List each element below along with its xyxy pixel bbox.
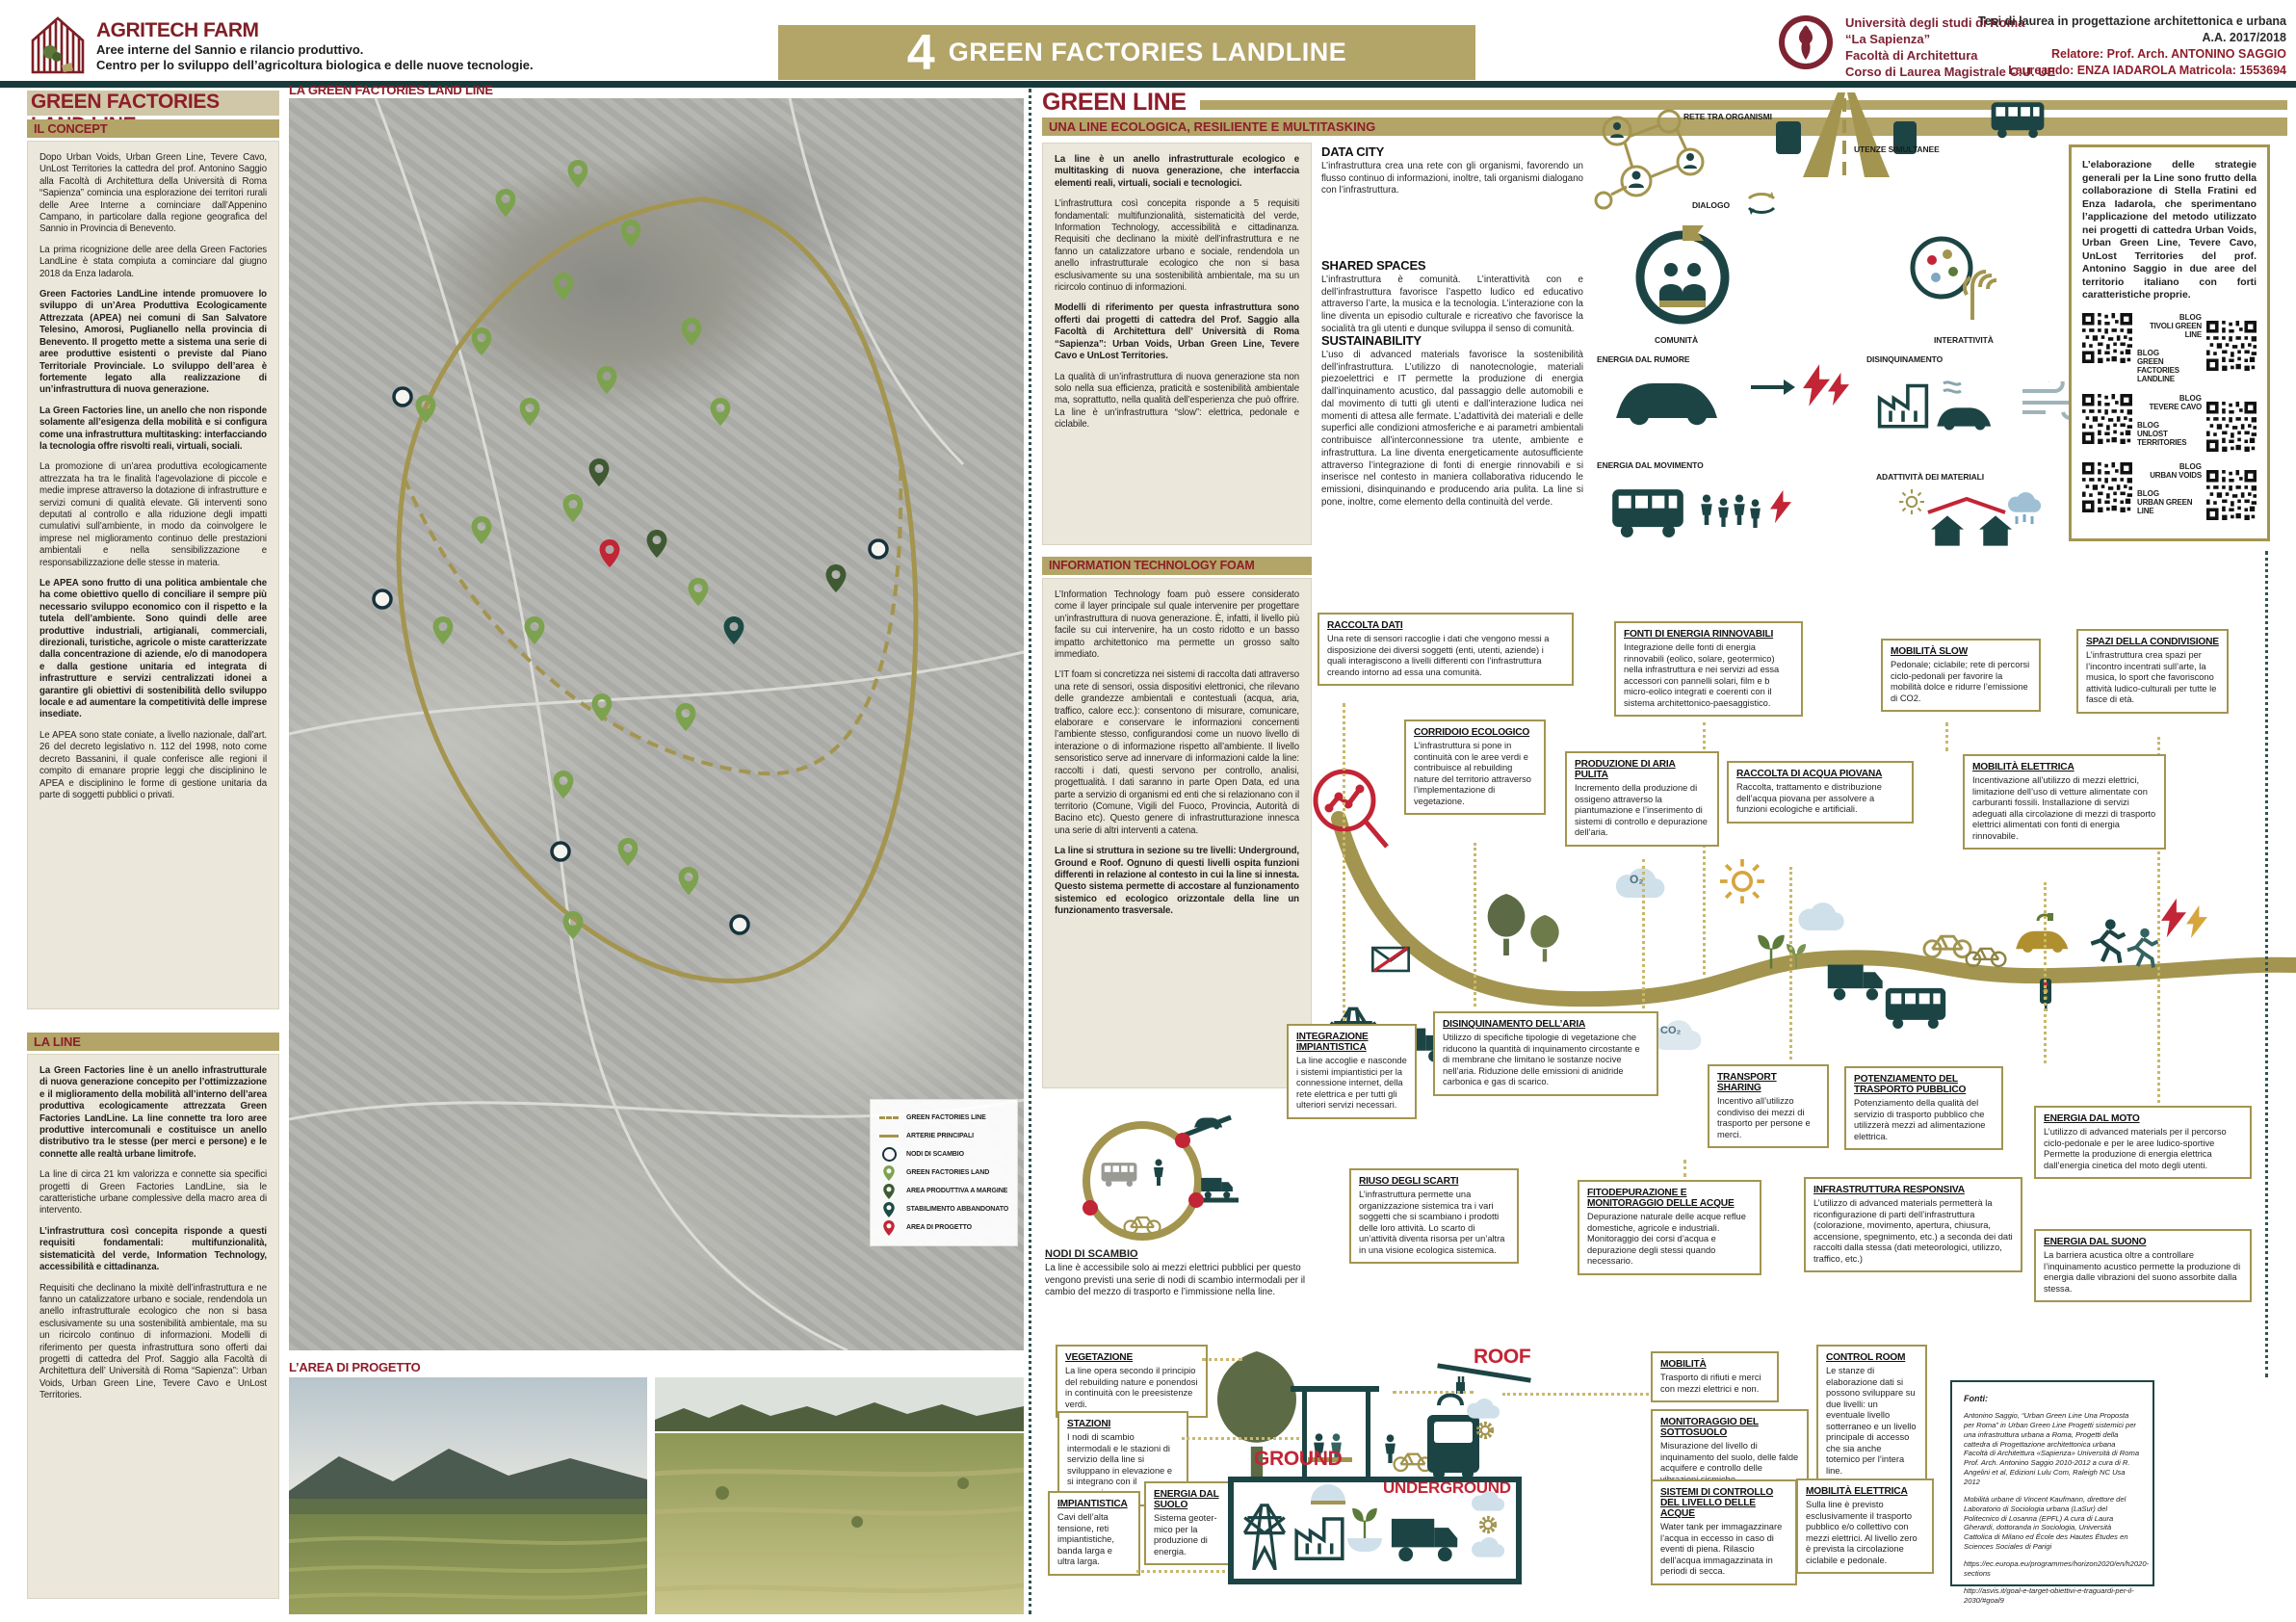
qr-blog-label: BLOG <box>2137 313 2202 322</box>
qr-code-urban-green-line <box>2082 462 2132 512</box>
connector <box>1343 703 1345 1021</box>
strategy-box: L’elaborazione delle strategie generali … <box>2069 144 2270 541</box>
datacity-block: DATA CITY L’infrastruttura crea una rete… <box>1321 144 1583 197</box>
territory-map: GREEN FACTORIES LINE ARTERIE PRINCIPALI … <box>289 98 1024 1350</box>
intro-paragraph: Modelli di riferimento per questa infras… <box>1055 302 1299 362</box>
qr-row: BLOG TIVOLI GREEN LINE BLOG GREEN FACTOR… <box>2082 313 2257 383</box>
oxygen-cloud: O₂ <box>1614 867 1666 903</box>
concept-section-bar: IL CONCEPT <box>27 119 279 138</box>
agritech-farm-subtitle-2: Centro per lo sviluppo dell’agricoltura … <box>96 58 534 73</box>
map-legend: GREEN FACTORIES LINE ARTERIE PRINCIPALI … <box>870 1099 1018 1246</box>
itfoam-paragraph: L’Information Technology foam può essere… <box>1055 589 1299 661</box>
laline-paragraph: La Green Factories line è un anello infr… <box>39 1065 267 1161</box>
green-factories-dashed-line <box>404 459 900 773</box>
annotation-mobilita: MOBILITÀTrasporto di rifiuti e merci con… <box>1651 1351 1779 1402</box>
lightning-icon <box>1803 364 1849 411</box>
annotation-mobilita-elettrica: MOBILITÀ ELETTRICAIncentivazione all’uti… <box>1963 754 2166 850</box>
pins-green-factories-land <box>416 160 731 939</box>
annotation-disinquinamento-aria: DISINQUINAMENTO DELL’ARIAUtilizzo di spe… <box>1433 1011 1658 1096</box>
laline-heading: LA LINE <box>34 1034 81 1049</box>
cloud-icon <box>1797 902 1845 935</box>
node-circle-icon <box>878 1147 900 1162</box>
connector <box>1789 867 1792 1060</box>
co2-cloud: CO₂ <box>1651 1019 1703 1055</box>
sapienza-logo <box>1777 13 1835 71</box>
energy-bolt-icon <box>2161 898 2207 943</box>
geothermal-dome <box>1311 1484 1345 1504</box>
legend-item: AREA PRODUTTIVA A MARGINE <box>878 1182 1009 1200</box>
concept-paragraph: La prima ricognizione delle aree della G… <box>39 245 267 280</box>
pollution-car-factory-icon <box>1876 376 2001 440</box>
annotation-spazi-condivisione: SPAZI DELLA CONDIVISIONEL’infrastruttura… <box>2076 629 2229 714</box>
adaptive-houses-icon <box>1893 489 2048 552</box>
gear-icon <box>1478 1515 1498 1534</box>
annotation-transport-sharing: TRANSPORT SHARINGIncentivo all’utilizzo … <box>1708 1064 1829 1148</box>
agritech-farm-title: AGRITECH FARM <box>96 19 534 42</box>
thesis-line-2: A.A. 2017/2018 <box>1872 30 2286 46</box>
fonti-heading: Fonti: <box>1964 1394 2141 1403</box>
annotation-acqua-piovana: RACCOLTA DI ACQUA PIOVANARaccolta, tratt… <box>1727 761 1914 824</box>
thesis-poster: AGRITECH FARM Aree interne del Sannio e … <box>0 0 2296 1622</box>
dialog-arrows-icon <box>1745 191 1778 221</box>
bus-icon <box>1990 100 2046 144</box>
annotation-riuso-scarti: RIUSO DEGLI SCARTIL’infrastruttura perme… <box>1349 1168 1519 1264</box>
annotation-energia-moto: ENERGIA DAL MOTOL’utilizzo di advanced m… <box>2034 1106 2252 1179</box>
data-cloud-icon <box>1471 1536 1505 1557</box>
community-icon <box>1631 223 1735 332</box>
nodi-di-scambio-diagram <box>1067 1115 1240 1255</box>
sustainability-block: SUSTAINABILITY L’uso di advanced materia… <box>1321 333 1583 510</box>
qr-blog-label: BLOG <box>2137 489 2202 498</box>
connector <box>1945 722 1948 751</box>
sun-power-icon <box>1720 859 1764 908</box>
pin-icon <box>878 1184 900 1199</box>
ground-label: GROUND <box>1254 1448 1343 1471</box>
chapter-banner: 4 GREEN FACTORIES LANDLINE <box>778 25 1475 80</box>
shelter-post <box>1366 1392 1370 1477</box>
charging-plug-icon <box>1431 1376 1470 1415</box>
pins-area-produttiva-a-margine <box>589 458 847 592</box>
thesis-relatore: Relatore: Prof. Arch. ANTONINO SAGGIO <box>1872 46 2286 63</box>
concept-paragraph: Green Factories LandLine intende promuov… <box>39 289 267 397</box>
energia-rumore-label: ENERGIA DAL RUMORE <box>1597 354 1689 364</box>
sharedspaces-text: L’infrastruttura è comunità. L’interatti… <box>1321 275 1583 336</box>
nodi-di-scambio-caption: NODI DI SCAMBIO La line è accessibile so… <box>1045 1248 1326 1299</box>
qr-row: BLOG URBAN VOIDS BLOG URBAN GREEN LINE <box>2082 462 2257 520</box>
strategy-text: L’elaborazione delle strategie generali … <box>2082 159 2257 302</box>
datacity-heading: DATA CITY <box>1321 144 1583 159</box>
right-dotted-divider <box>2265 551 2268 1377</box>
dashed-line-icon <box>878 1116 900 1119</box>
qr-code-unlost-territories <box>2082 394 2132 444</box>
utenze-simultanee-label: UTENZE SIMULTANEE <box>1854 144 1940 154</box>
legend-item: GREEN FACTORIES LINE <box>878 1109 1009 1127</box>
adattivita-label: ADATTIVITÀ DEI MATERIALI <box>1876 472 1984 482</box>
connector <box>1502 1393 1649 1396</box>
annotation-sistemi-acque: SISTEMI DI CONTROLLO DEL LIVELLO DELLE A… <box>1651 1479 1797 1585</box>
itfoam-paragraph: La line si struttura in sezione su tre l… <box>1055 846 1299 917</box>
pin-icon <box>878 1220 900 1236</box>
connector <box>1202 1358 1242 1361</box>
annotation-potenziamento-trasporto: POTENZIAMENTO DEL TRASPORTO PUBBLICOPote… <box>1844 1066 2003 1150</box>
thesis-line-1: Tesi di laurea in progettazione architet… <box>1872 13 2286 30</box>
annotation-mobilita-slow: MOBILITÀ SLOWPedonale; ciclabile; rete d… <box>1881 639 2041 712</box>
roof-label: ROOF <box>1474 1346 1530 1369</box>
legend-item: STABILIMENTO ABBANDONATO <box>878 1200 1009 1218</box>
data-cloud-icon <box>1466 1398 1500 1419</box>
qr-code-urban-voids <box>2206 470 2257 520</box>
concept-text-box: Dopo Urban Voids, Urban Green Line, Teve… <box>27 141 279 1009</box>
qr-label: GREEN FACTORIES LANDLINE <box>2137 357 2202 383</box>
laline-paragraph: L’infrastruttura così concepita risponde… <box>39 1226 267 1274</box>
laline-paragraph: La line di circa 21 km valorizza e conne… <box>39 1169 267 1217</box>
laline-paragraph: Requisiti che declinano la mixitè dell’i… <box>39 1283 267 1402</box>
sprout-icon <box>1757 932 1807 974</box>
agritech-farm-subtitle-1: Aree interne del Sannio e rilancio produ… <box>96 42 534 58</box>
intro-paragraph: L’infrastruttura così concepita risponde… <box>1055 198 1299 294</box>
greenline-title: GREEN LINE <box>1042 89 1200 117</box>
section-cut-illustration: ROOF GROUND UNDERGROUND <box>1194 1344 1676 1622</box>
plant-basin <box>1347 1538 1382 1552</box>
tree-icon <box>1527 915 1562 968</box>
connector <box>1393 1391 1474 1394</box>
annotation-integrazione-impiantistica: INTEGRAZIONE IMPIANTISTICALa line accogl… <box>1287 1024 1417 1119</box>
concept-paragraph: La promozione di un’area produttiva ecol… <box>39 461 267 569</box>
connector <box>1683 1160 1686 1177</box>
qr-label: TEVERE CAVO <box>2137 403 2202 411</box>
annotation-energia-suono: ENERGIA DAL SUONOLa barriera acustica ol… <box>2034 1229 2252 1302</box>
pin-icon <box>878 1202 900 1217</box>
intro-paragraph: La line è un anello infrastrutturale eco… <box>1055 154 1299 190</box>
intro-paragraph: La qualità di un’infrastruttura di nuova… <box>1055 372 1299 432</box>
greenline-subtitle: UNA LINE ECOLOGICA, RESILIENTE E MULTITA… <box>1049 119 1375 134</box>
chapter-number: 4 <box>907 28 933 78</box>
qr-label: TIVOLI GREEN LINE <box>2137 322 2202 339</box>
annotation-fonti-energia: FONTI DI ENERGIA RINNOVABILIIntegrazione… <box>1614 621 1803 717</box>
legend-item: ARTERIE PRINCIPALI <box>878 1127 1009 1145</box>
qr-label: URBAN GREEN LINE <box>2137 498 2202 515</box>
concept-paragraph: La Green Factories line, un anello che n… <box>39 405 267 454</box>
itfoam-section-bar: INFORMATION TECHNOLOGY FOAM <box>1042 557 1312 575</box>
itfoam-paragraph: L’IT foam si concretizza nei sistemi di … <box>1055 669 1299 837</box>
left-column-title-strip: GREEN FACTORIES LAND LINE <box>27 91 279 116</box>
fonti-item: http://asvis.it/goal-e-target-obiettivi-… <box>1964 1586 2141 1606</box>
qr-code-tivoli-green-line <box>2206 321 2257 371</box>
agritech-farm-logo-icon <box>27 12 89 75</box>
qr-blog-label: BLOG <box>2137 349 2202 357</box>
electric-bus-icon <box>1884 986 1947 1033</box>
fonti-item: Antonino Saggio, “Urban Green Line Una P… <box>1964 1411 2141 1487</box>
itfoam-text-box: L’Information Technology foam può essere… <box>1042 578 1312 1088</box>
annotation-control-room: CONTROL ROOMLe stanze di elaborazione da… <box>1816 1345 1927 1484</box>
qr-code-tevere-cavo <box>2206 402 2257 452</box>
electric-bus-front <box>1427 1415 1479 1473</box>
annotation-impiantistica: IMPIANTISTICACavi dell’alta tensione, re… <box>1048 1491 1140 1576</box>
annotation-aria-pulita: PRODUZIONE DI ARIA PULITAIncremento dell… <box>1565 751 1719 847</box>
freight-truck-icon <box>1826 963 1886 1007</box>
bus-crowd-icon <box>1610 480 1793 544</box>
concept-paragraph: Le APEA sono state coniate, a livello na… <box>39 730 267 801</box>
runner-icon <box>2088 917 2126 972</box>
legend-item: NODI DI SCAMBIO <box>878 1145 1009 1164</box>
photos-heading: L’AREA DI PROGETTO <box>289 1360 421 1374</box>
qr-row: BLOG TEVERE CAVO BLOG UNLOST TERRITORIES <box>2082 394 2257 452</box>
connector <box>1474 843 1476 1007</box>
concept-paragraph: Le APEA sono frutto di una politica ambi… <box>39 578 267 721</box>
tree-icon <box>1483 894 1529 962</box>
map-title: LA GREEN FACTORIES LAND LINE <box>289 83 493 97</box>
highway-icon <box>1774 92 1918 182</box>
underground-box <box>1228 1477 1522 1584</box>
qr-blog-label: BLOG <box>2137 421 2202 430</box>
connector <box>1136 1570 1225 1573</box>
dialogo-label: DIALOGO <box>1692 200 1730 210</box>
fonti-item: Mobilità urbane di Vincent Kaufmann, dir… <box>1964 1495 2141 1552</box>
datacity-text: L’infrastruttura crea una rete con gli o… <box>1321 161 1583 197</box>
pin-area-di-progetto <box>600 539 620 567</box>
green-factories-line-ring <box>399 199 916 981</box>
agritech-farm-title-block: AGRITECH FARM Aree interne del Sannio e … <box>96 19 534 74</box>
sensor-network-icon <box>1306 766 1395 863</box>
runner-icon <box>2125 927 2159 976</box>
data-cloud-icon <box>1471 1490 1505 1511</box>
thesis-laureando: Laureando: ENZA IADAROLA Matricola: 1553… <box>1872 63 2286 79</box>
annotation-vegetazione: VEGETAZIONELa line opera secondo il prin… <box>1056 1345 1208 1418</box>
annotation-fitodepurazione: FITODEPURAZIONE E MONITORAGGIO DELLE ACQ… <box>1578 1180 1761 1275</box>
chapter-title: GREEN FACTORIES LANDLINE <box>949 38 1347 67</box>
geothermal-factory-icon <box>1293 1509 1345 1565</box>
fonti-item: https://ec.europa.eu/programmes/horizon2… <box>1964 1559 2141 1579</box>
project-photo-2 <box>655 1377 1024 1614</box>
annotation-corridoio-ecologico: CORRIDOIO ECOLOGICOL’infrastruttura si p… <box>1404 719 1546 815</box>
energia-movimento-label: ENERGIA DAL MOVIMENTO <box>1597 460 1704 470</box>
sharedspaces-block: SHARED SPACES L’infrastruttura è comunit… <box>1321 258 1583 336</box>
concept-heading: IL CONCEPT <box>34 121 108 136</box>
pylon-icon <box>1241 1492 1288 1571</box>
nodes-nodi-di-scambio <box>374 388 887 933</box>
qr-blog-label: BLOG <box>2137 462 2202 471</box>
sharedspaces-heading: SHARED SPACES <box>1321 258 1583 273</box>
qr-label: UNLOST TERRITORIES <box>2137 430 2202 447</box>
legend-item: AREA DI PROGETTO <box>878 1218 1009 1237</box>
annotation-raccolta-dati: RACCOLTA DATIUna rete di sensori raccogl… <box>1318 613 1574 686</box>
pin-stabilimento-abbandonato <box>724 616 744 644</box>
network-organisms-icon <box>1594 106 1708 219</box>
fonti-box: Fonti: Antonino Saggio, “Urban Green Lin… <box>1950 1380 2154 1586</box>
pin-icon <box>878 1165 900 1181</box>
gear-icon <box>1475 1421 1495 1440</box>
interattivita-label: INTERATTIVITÀ <box>1934 335 1994 345</box>
disinquinamento-label: DISINQUINAMENTO <box>1866 354 1943 364</box>
connector <box>1642 859 1645 1008</box>
bicycle-icon <box>1965 942 2007 973</box>
connector <box>2044 882 2047 1063</box>
qr-blog-label: BLOG <box>2137 394 2202 403</box>
annotation-mobilita-elettrica-2: MOBILITÀ ELETTRICASulla line è previsto … <box>1796 1478 1934 1574</box>
connector <box>1182 1437 1299 1440</box>
sustainability-heading: SUSTAINABILITY <box>1321 333 1583 348</box>
truck-icon <box>1390 1517 1461 1563</box>
solid-line-icon <box>878 1135 900 1138</box>
network-organisms-label: RETE TRA ORGANISMI <box>1683 112 1772 121</box>
sustainability-text: L’uso di advanced materials favorisce la… <box>1321 350 1583 510</box>
annotation-infrastruttura-responsiva: INFRASTRUTTURA RESPONSIVAL’utilizzo di a… <box>1804 1177 2022 1272</box>
project-photo-1 <box>289 1377 647 1614</box>
interactivity-icon <box>1905 227 2005 328</box>
thesis-info-block: Tesi di laurea in progettazione architet… <box>1872 13 2286 79</box>
noise-arrow-icon <box>1751 378 1795 402</box>
greenline-intro-box: La line è un anello infrastrutturale eco… <box>1042 143 1312 545</box>
laline-section-bar: LA LINE <box>27 1033 279 1051</box>
qr-label: URBAN VOIDS <box>2137 471 2202 480</box>
electric-car-icon <box>2009 911 2076 958</box>
legend-item: GREEN FACTORIES LAND <box>878 1164 1009 1182</box>
itfoam-heading: INFORMATION TECHNOLOGY FOAM <box>1049 559 1255 572</box>
concept-paragraph: Dopo Urban Voids, Urban Green Line, Teve… <box>39 152 267 236</box>
car-noise-icon <box>1610 374 1726 432</box>
plant-icon <box>1351 1505 1378 1540</box>
comunita-label: COMUNITÀ <box>1655 335 1698 345</box>
qr-code-green-factories-landline <box>2082 313 2132 363</box>
center-divider <box>1029 89 1031 1614</box>
mail-data-icon <box>1371 946 1410 978</box>
laline-text-box: La Green Factories line è un anello infr… <box>27 1054 279 1599</box>
